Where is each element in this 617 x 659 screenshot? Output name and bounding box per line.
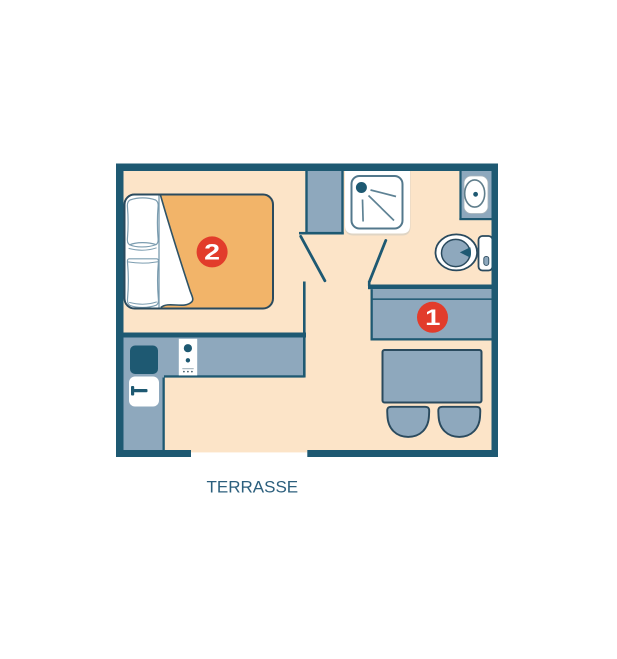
svg-text:1: 1 [425, 305, 440, 330]
svg-text:2: 2 [204, 241, 220, 265]
svg-text:TERRASSE: TERRASSE [207, 478, 299, 497]
